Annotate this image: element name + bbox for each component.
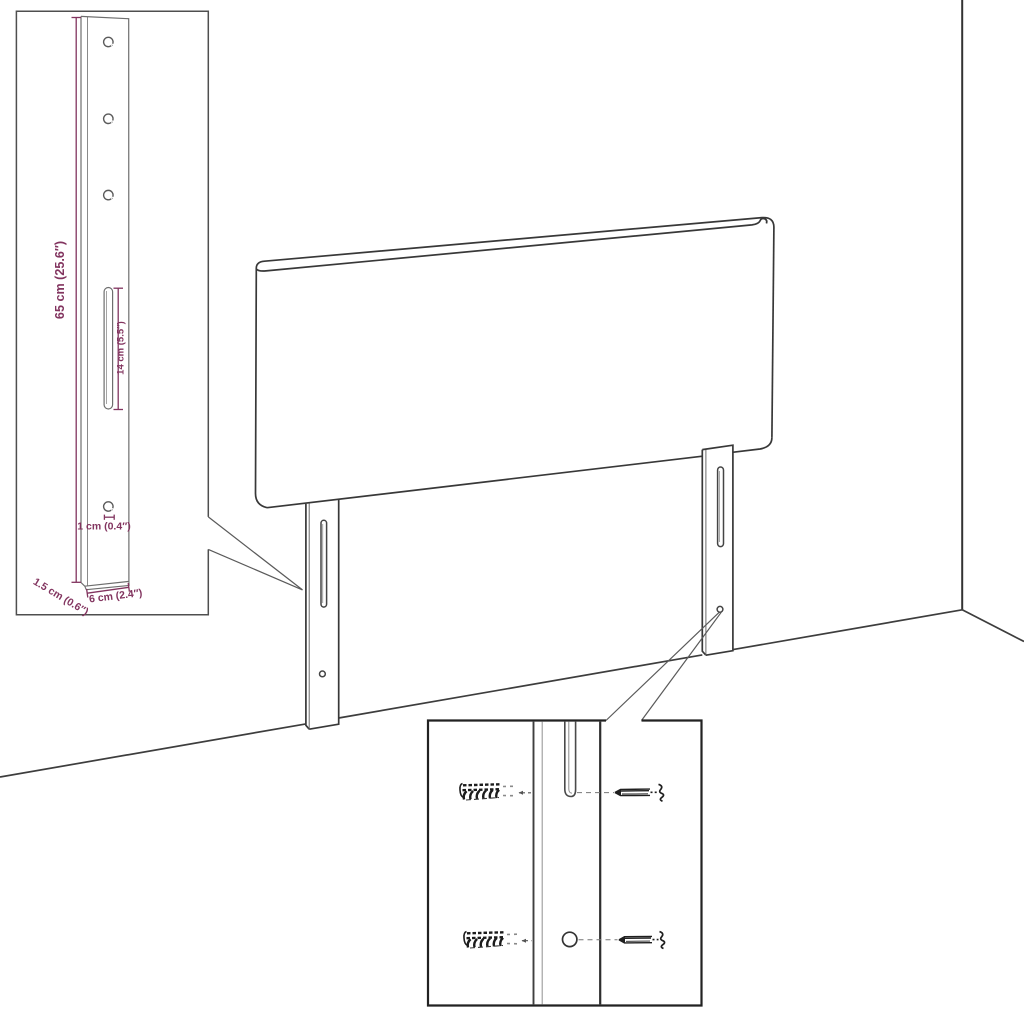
svg-text:1 cm (0.4″): 1 cm (0.4″) [77, 521, 130, 533]
svg-text:6 cm (2.4″): 6 cm (2.4″) [88, 587, 143, 605]
svg-text:14 cm (5.5″): 14 cm (5.5″) [115, 321, 126, 375]
svg-text:65 cm (25.6″): 65 cm (25.6″) [53, 241, 67, 319]
